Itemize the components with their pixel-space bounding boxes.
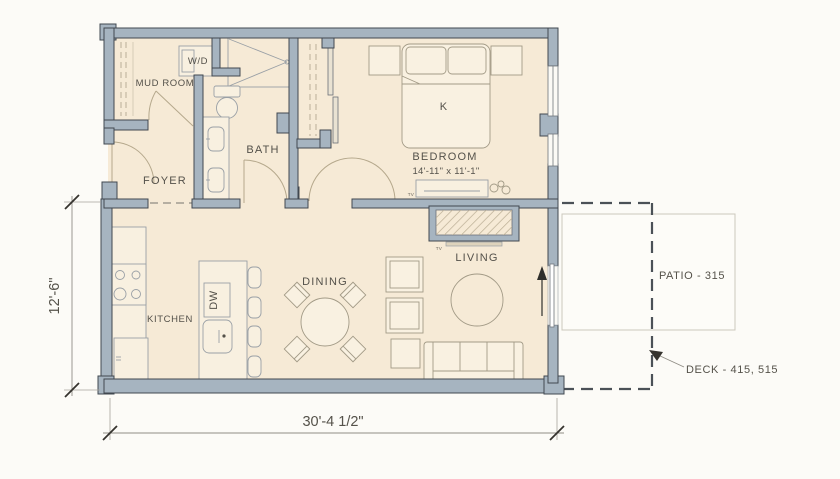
closet-sliding-panel bbox=[333, 97, 338, 143]
bath-label: BATH bbox=[246, 144, 279, 156]
bath-vanity bbox=[203, 117, 229, 199]
kitchen-label: KITCHEN bbox=[147, 314, 193, 325]
refrigerator bbox=[114, 338, 148, 381]
wall-right-segment bbox=[548, 325, 558, 383]
deck-label: DECK - 415, 515 bbox=[686, 364, 778, 376]
dining-label: DINING bbox=[302, 276, 348, 288]
bar-stool bbox=[248, 326, 261, 347]
wall-bath-vanity bbox=[194, 75, 203, 199]
overall-width-label: 30'-4 1/2" bbox=[302, 414, 363, 430]
bar-stool bbox=[248, 297, 261, 318]
wall-right-segment bbox=[548, 28, 558, 66]
faucet-icon bbox=[222, 334, 225, 337]
wall-wd-stub bbox=[212, 68, 240, 76]
bar-stool bbox=[248, 267, 261, 288]
wall-window-pier bbox=[540, 114, 558, 136]
wall-bottom bbox=[104, 379, 558, 393]
bed-size-label: K bbox=[440, 101, 449, 113]
dishwasher-label: DW bbox=[208, 290, 220, 310]
toilet-tank bbox=[214, 86, 240, 97]
wall-bath-bedroom bbox=[289, 38, 298, 199]
wall-divider-a bbox=[104, 199, 148, 208]
nightstand bbox=[369, 46, 400, 75]
overall-depth-label: 12'-6" bbox=[47, 278, 63, 315]
washer-dryer-label: W/D bbox=[188, 56, 208, 67]
wall-top bbox=[104, 28, 558, 38]
sliding-glass-door bbox=[550, 264, 554, 327]
armchair bbox=[386, 257, 423, 292]
nightstand bbox=[491, 46, 522, 75]
wall-closet-cap bbox=[320, 130, 331, 148]
wall-bath-pier bbox=[277, 113, 289, 133]
dining-table bbox=[301, 298, 349, 346]
armchair bbox=[386, 298, 423, 333]
bar-stool bbox=[248, 356, 261, 377]
wall-closet-pier bbox=[322, 38, 334, 48]
closet-sliding-panel bbox=[328, 47, 333, 95]
toilet-bowl bbox=[217, 98, 238, 119]
floor-plan: PATIO - 315 DECK - 415, 515 W/D bbox=[0, 0, 840, 479]
mud-room-label: MUD ROOM bbox=[136, 78, 195, 89]
side-table bbox=[391, 339, 420, 368]
bedroom-dims-label: 14'-11" x 11'-1" bbox=[412, 166, 479, 177]
sofa bbox=[424, 342, 523, 382]
bedroom-label: BEDROOM bbox=[412, 151, 477, 163]
fireplace-hatch bbox=[436, 210, 512, 235]
tv-console bbox=[416, 180, 488, 197]
tv-label-living: TV bbox=[436, 246, 443, 251]
wall-left-segment bbox=[104, 128, 114, 144]
wall-hall-pillar bbox=[285, 199, 308, 208]
wall-left-kitchen bbox=[101, 199, 112, 385]
foyer-label: FOYER bbox=[143, 175, 187, 187]
patio-label: PATIO - 315 bbox=[659, 270, 725, 282]
wall-right-segment bbox=[548, 164, 558, 266]
tv-label-bedroom: TV bbox=[408, 192, 415, 197]
wall-left-mudroom bbox=[104, 28, 114, 124]
wall-divider-b bbox=[192, 199, 240, 208]
living-label: LIVING bbox=[455, 252, 498, 264]
tv-shelf bbox=[446, 242, 502, 246]
